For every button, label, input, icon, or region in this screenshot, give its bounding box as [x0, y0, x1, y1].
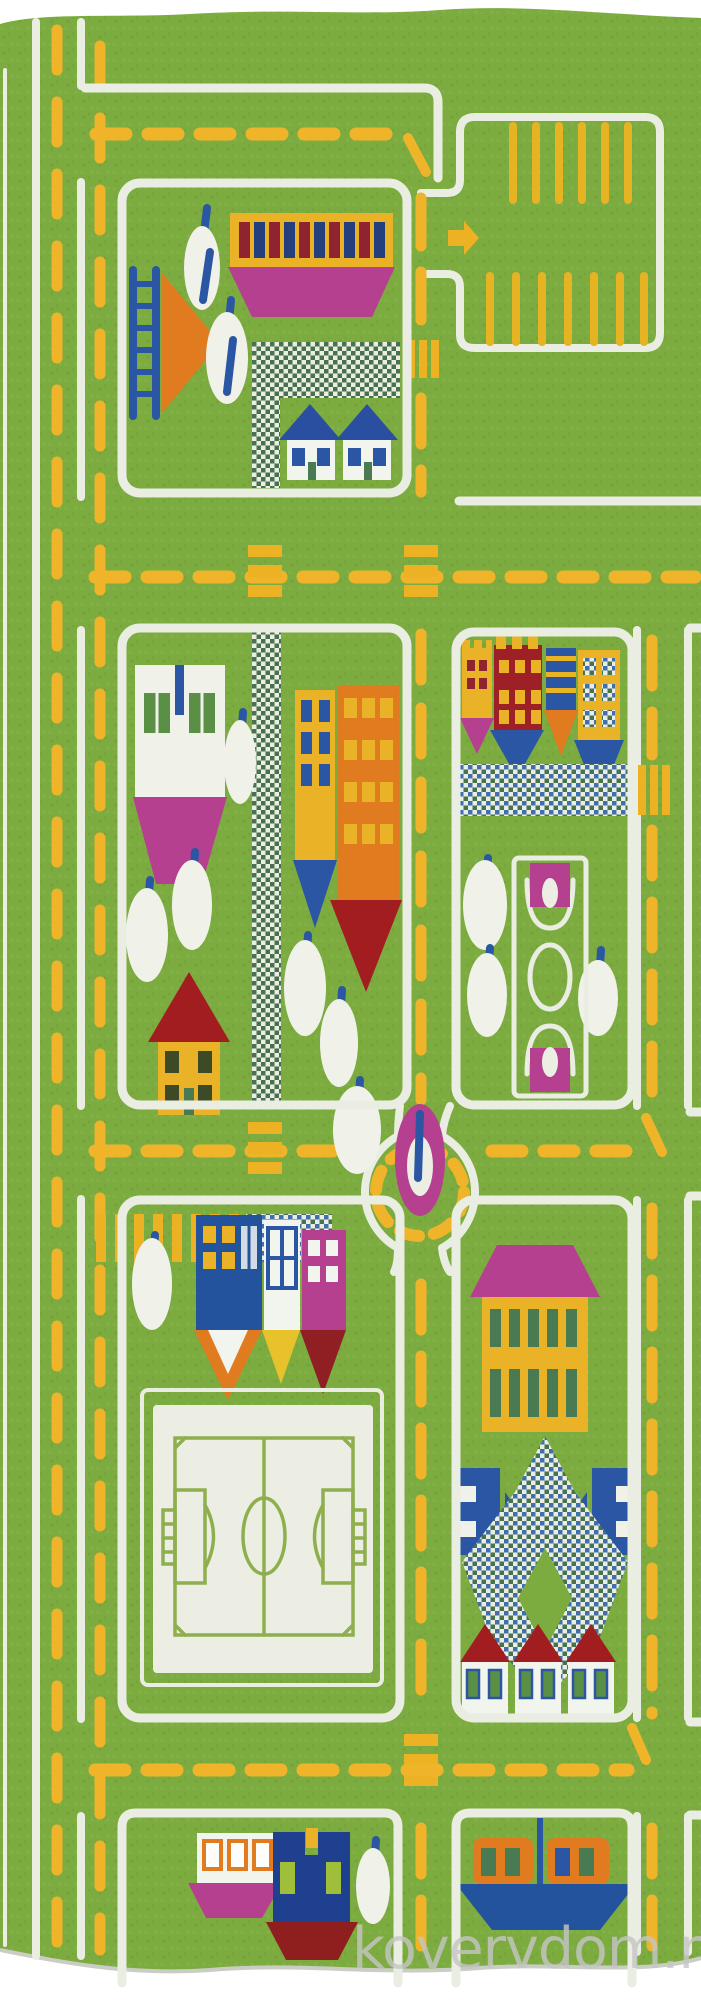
watermark: kovervdom.ru [352, 1916, 701, 1982]
island-tree-trunk [418, 1114, 420, 1178]
parking-ticks-bottom [490, 276, 644, 342]
checker-path-vertical-2 [252, 632, 281, 1105]
ferry-boat [188, 1833, 282, 1918]
checker-path-vertical [252, 342, 280, 488]
market-building-base [228, 267, 395, 317]
crossing-stack-road4 [404, 1734, 438, 1786]
block-bottom-left [132, 1215, 382, 1685]
checker-band [458, 764, 630, 816]
market-building [228, 213, 395, 317]
soccer-field [142, 1390, 382, 1685]
small-houses-row [460, 1624, 616, 1714]
crossing-stack-road3 [248, 1122, 282, 1174]
rug-photo: kovervdom.ru [0, 0, 701, 2000]
tug-boat [266, 1828, 358, 1960]
rug-illustration: kovervdom.ru [0, 0, 701, 2000]
